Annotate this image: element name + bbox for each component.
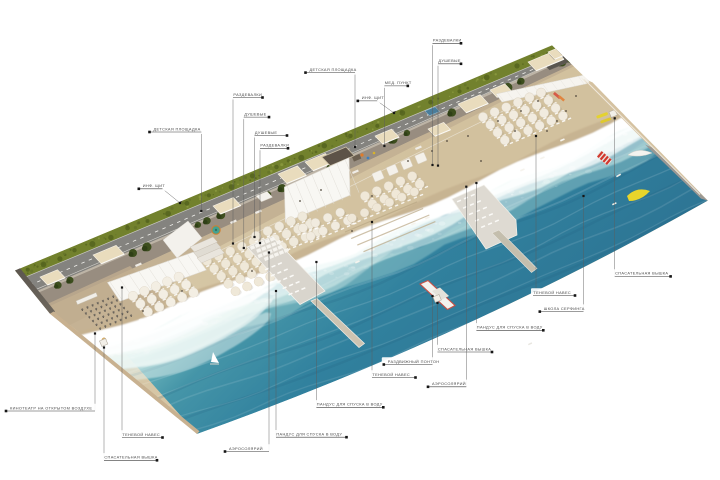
svg-text:СПАСАТЕЛЬНАЯ ВЫШКА: СПАСАТЕЛЬНАЯ ВЫШКА xyxy=(104,455,157,460)
svg-text:ИНФ. ЩИТ: ИНФ. ЩИТ xyxy=(143,183,166,188)
svg-text:ДУШЕВЫЕ: ДУШЕВЫЕ xyxy=(255,130,277,135)
svg-text:РАЗДЕВАЛКИ: РАЗДЕВАЛКИ xyxy=(433,38,462,43)
svg-text:РАЗДВИЖНЫЙ ПОНТОН: РАЗДВИЖНЫЙ ПОНТОН xyxy=(388,359,440,364)
svg-text:АЭРОСОЛЯРИЙ: АЭРОСОЛЯРИЙ xyxy=(432,381,466,386)
svg-text:ТЕНЕВОЙ НАВЕС: ТЕНЕВОЙ НАВЕС xyxy=(122,432,160,437)
svg-text:КИНОТЕАТР НА ОТКРЫТОМ ВОЗДУХЕ: КИНОТЕАТР НА ОТКРЫТОМ ВОЗДУХЕ xyxy=(10,405,92,410)
svg-text:ПАНДУС ДЛЯ СПУСКА В ВОДУ: ПАНДУС ДЛЯ СПУСКА В ВОДУ xyxy=(276,432,342,437)
svg-text:ТЕНЕВОЙ НАВЕС: ТЕНЕВОЙ НАВЕС xyxy=(372,372,410,377)
svg-text:ДЕТСКАЯ ПЛОЩАДКА: ДЕТСКАЯ ПЛОЩАДКА xyxy=(310,67,357,72)
svg-text:ДУШЕВЫЕ: ДУШЕВЫЕ xyxy=(438,58,460,63)
svg-text:СПАСАТЕЛЬНАЯ ВЫШКА: СПАСАТЕЛЬНАЯ ВЫШКА xyxy=(438,346,491,351)
svg-text:РАЗДЕВАЛКИ: РАЗДЕВАЛКИ xyxy=(260,143,289,148)
svg-text:ТЕНЕВОЙ НАВЕС: ТЕНЕВОЙ НАВЕС xyxy=(533,290,571,295)
svg-text:ПАНДУС ДЛЯ СПУСКА В ВОДУ: ПАНДУС ДЛЯ СПУСКА В ВОДУ xyxy=(477,325,543,330)
svg-text:ДУШЕВЫЕ: ДУШЕВЫЕ xyxy=(244,111,266,116)
svg-text:ДЕТСКАЯ ПЛОЩАДКА: ДЕТСКАЯ ПЛОЩАДКА xyxy=(154,126,201,131)
svg-text:ПАНДУС ДЛЯ СПУСКА В ВОДУ: ПАНДУС ДЛЯ СПУСКА В ВОДУ xyxy=(317,402,383,407)
svg-text:ИНФ. ЩИТ: ИНФ. ЩИТ xyxy=(362,95,385,100)
svg-text:РАЗДЕВАЛКИ: РАЗДЕВАЛКИ xyxy=(233,92,262,97)
svg-text:МЕД. ПУНКТ: МЕД. ПУНКТ xyxy=(385,80,412,85)
svg-text:СПАСАТЕЛЬНАЯ ВЫШКА: СПАСАТЕЛЬНАЯ ВЫШКА xyxy=(615,271,668,276)
svg-text:ШКОЛА СЕРФИНГА: ШКОЛА СЕРФИНГА xyxy=(544,306,585,311)
svg-text:АЭРОСОЛЯРИЙ: АЭРОСОЛЯРИЙ xyxy=(229,446,263,451)
